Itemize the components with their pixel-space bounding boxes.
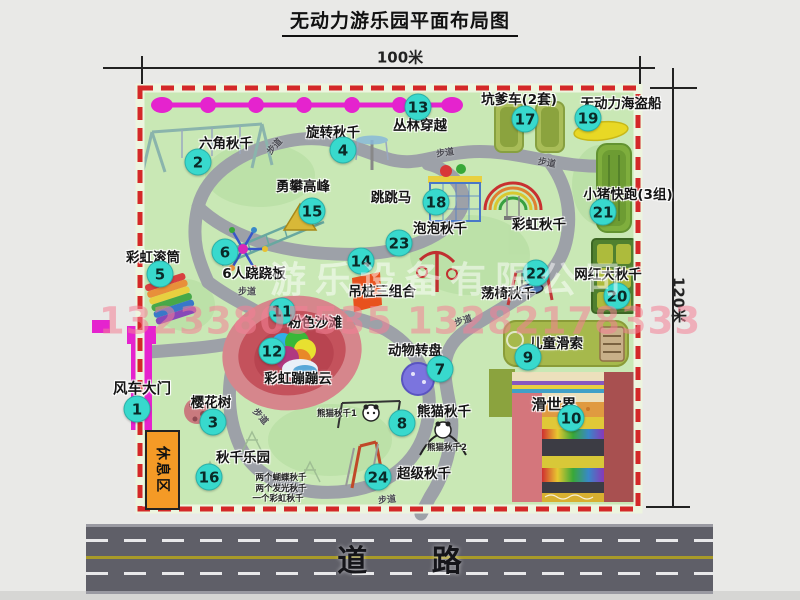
- park-plan-canvas: 无动力游乐园平面布局图 100米 120米: [0, 0, 800, 600]
- cherry-tree-icon: [184, 398, 210, 424]
- park-map-graphics: [0, 0, 800, 600]
- windmill-gate-icon: [92, 320, 156, 430]
- piggy-run-track-icon: [597, 144, 631, 232]
- animal-turntable-icon: [402, 363, 434, 395]
- rest-area-zone: 休息区: [145, 430, 180, 510]
- rest-area-label: 休息区: [153, 446, 173, 494]
- big-swing-area-icon: [592, 239, 636, 313]
- kids-zipline-icon: [504, 321, 628, 366]
- hanging-piles-icon: [352, 272, 382, 312]
